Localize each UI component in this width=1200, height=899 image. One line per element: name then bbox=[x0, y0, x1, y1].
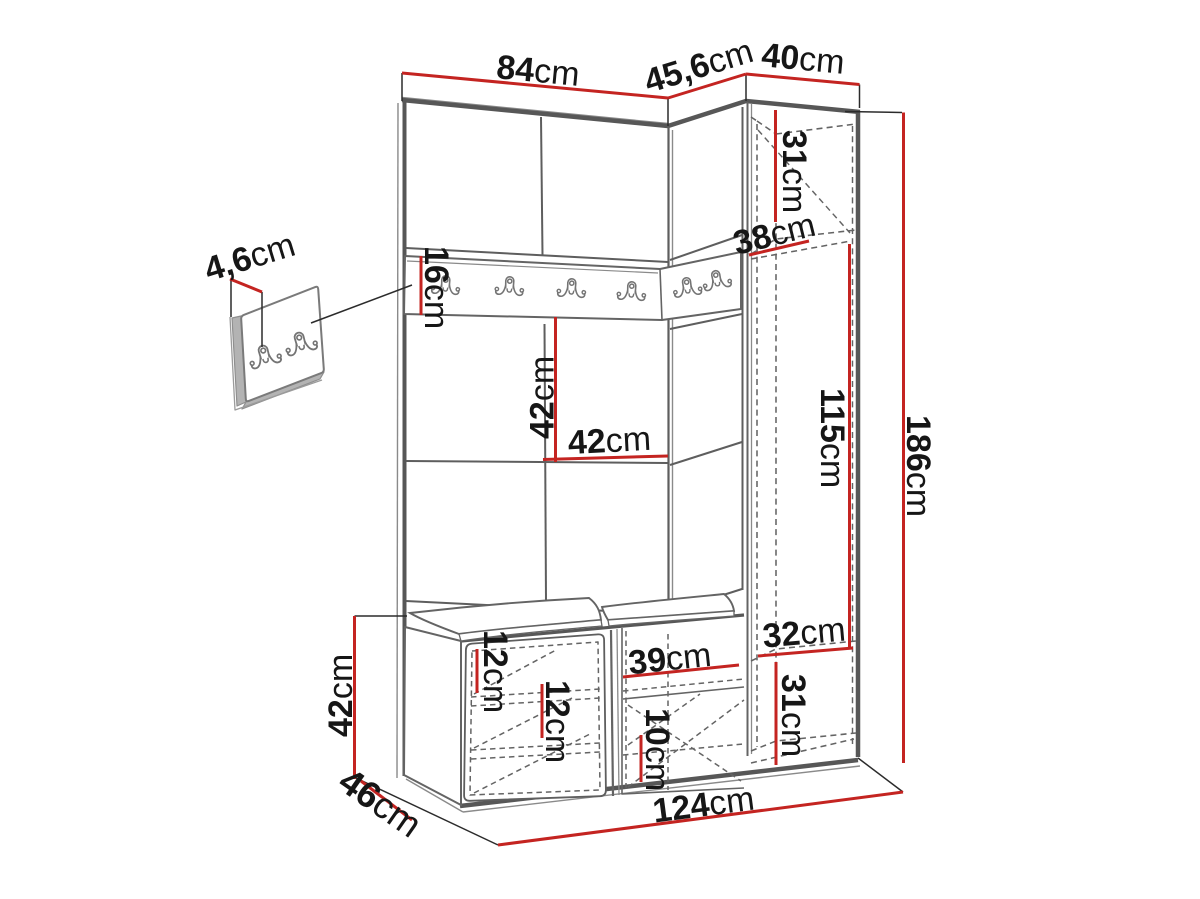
svg-text:42cm: 42cm bbox=[322, 654, 360, 737]
svg-text:42cm: 42cm bbox=[567, 420, 652, 462]
svg-text:12cm: 12cm bbox=[476, 630, 514, 713]
svg-text:31cm: 31cm bbox=[775, 130, 813, 213]
svg-text:115cm: 115cm bbox=[813, 388, 851, 488]
svg-text:40cm: 40cm bbox=[760, 36, 846, 82]
svg-text:16cm: 16cm bbox=[417, 246, 455, 329]
svg-text:12cm: 12cm bbox=[538, 680, 576, 763]
svg-text:42cm: 42cm bbox=[524, 356, 562, 439]
svg-text:31cm: 31cm bbox=[774, 674, 812, 757]
svg-text:32cm: 32cm bbox=[761, 610, 847, 655]
svg-text:84cm: 84cm bbox=[495, 48, 581, 94]
svg-text:186cm: 186cm bbox=[899, 415, 937, 517]
svg-text:10cm: 10cm bbox=[638, 708, 676, 791]
